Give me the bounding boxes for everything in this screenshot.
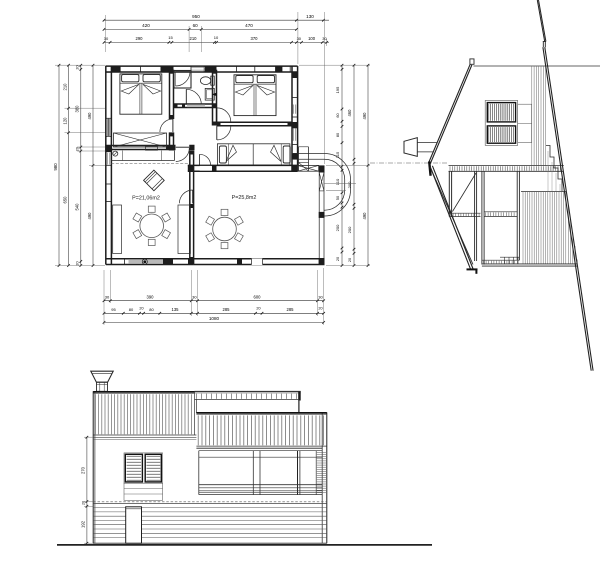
svg-text:20: 20 [76, 261, 80, 265]
svg-text:270: 270 [81, 466, 86, 474]
svg-text:1080: 1080 [209, 316, 220, 321]
svg-text:200: 200 [335, 224, 340, 231]
svg-text:20: 20 [256, 307, 260, 311]
svg-text:20: 20 [336, 257, 340, 261]
svg-text:30: 30 [318, 294, 323, 299]
svg-text:192: 192 [81, 520, 86, 528]
svg-text:210: 210 [190, 36, 198, 41]
svg-text:80: 80 [336, 133, 340, 137]
svg-text:490: 490 [87, 212, 92, 220]
svg-text:20: 20 [318, 307, 322, 311]
svg-text:210: 210 [62, 83, 67, 91]
svg-text:P=21,06m2: P=21,06m2 [132, 196, 160, 202]
svg-text:20: 20 [76, 147, 80, 151]
svg-text:460: 460 [347, 109, 352, 117]
svg-text:120: 120 [62, 117, 67, 125]
svg-text:100: 100 [308, 36, 316, 41]
svg-text:980: 980 [53, 163, 58, 171]
svg-text:650: 650 [62, 196, 67, 204]
svg-text:285: 285 [223, 307, 231, 312]
svg-text:290: 290 [136, 36, 144, 41]
svg-text:195: 195 [335, 86, 340, 93]
svg-text:80: 80 [149, 307, 154, 312]
svg-text:285: 285 [287, 307, 295, 312]
svg-text:130: 130 [306, 14, 314, 19]
svg-text:60: 60 [193, 23, 199, 28]
svg-text:200: 200 [347, 181, 352, 188]
svg-text:30: 30 [105, 294, 110, 299]
svg-text:30: 30 [104, 36, 109, 41]
svg-text:30: 30 [192, 294, 197, 299]
svg-text:50: 50 [336, 196, 340, 200]
svg-text:370: 370 [251, 36, 259, 41]
svg-text:20: 20 [76, 65, 80, 69]
svg-text:390: 390 [147, 294, 155, 299]
svg-text:200: 200 [347, 226, 352, 233]
svg-text:30: 30 [297, 36, 302, 41]
svg-text:95: 95 [111, 307, 116, 312]
svg-text:540: 540 [75, 203, 80, 211]
svg-text:60: 60 [336, 113, 340, 117]
svg-text:80: 80 [129, 307, 134, 312]
svg-text:470: 470 [245, 23, 253, 28]
svg-text:600: 600 [254, 294, 262, 299]
svg-text:135: 135 [172, 307, 180, 312]
svg-text:20: 20 [348, 258, 352, 262]
svg-text:420: 420 [142, 23, 150, 28]
svg-text:110: 110 [335, 178, 340, 185]
svg-text:380: 380 [75, 105, 80, 113]
svg-text:490: 490 [362, 212, 367, 220]
svg-text:20: 20 [139, 307, 143, 311]
svg-text:490: 490 [362, 112, 367, 120]
svg-text:15: 15 [168, 35, 173, 40]
svg-text:10: 10 [214, 35, 219, 40]
svg-text:490: 490 [87, 112, 92, 120]
svg-text:P=25,8m2: P=25,8m2 [232, 195, 257, 201]
svg-text:950: 950 [192, 14, 200, 19]
